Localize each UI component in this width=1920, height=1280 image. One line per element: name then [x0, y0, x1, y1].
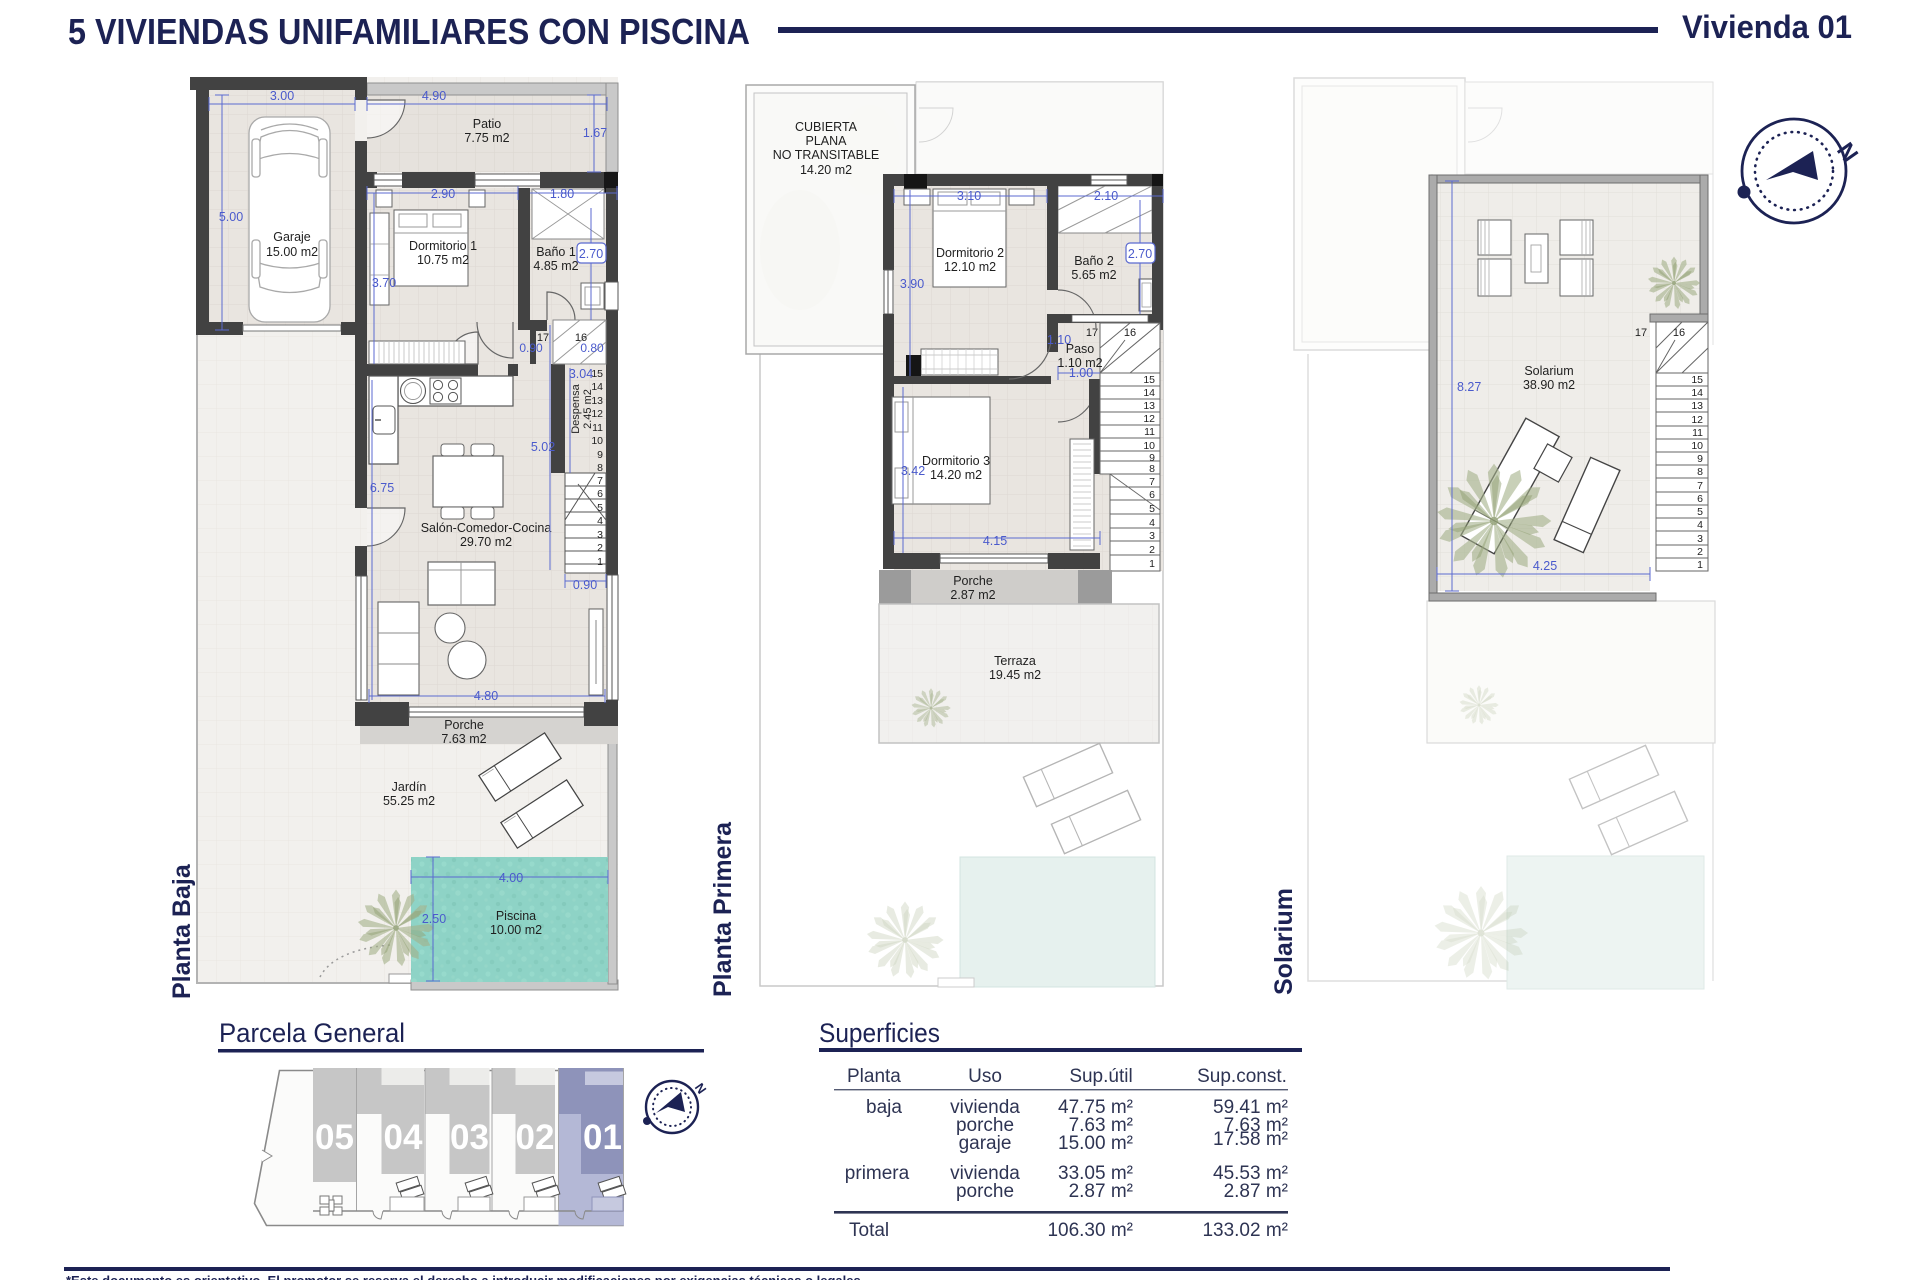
svg-text:9: 9	[1697, 453, 1703, 465]
svg-text:NO TRANSITABLE: NO TRANSITABLE	[773, 148, 880, 162]
svg-text:4.80: 4.80	[474, 689, 498, 703]
svg-text:3: 3	[597, 529, 603, 541]
svg-text:15: 15	[1143, 374, 1155, 386]
svg-text:6: 6	[1697, 493, 1703, 505]
svg-text:29.70 m2: 29.70 m2	[460, 535, 512, 549]
svg-text:2: 2	[1697, 546, 1703, 558]
svg-text:7.63 m2: 7.63 m2	[441, 732, 486, 746]
svg-text:Solarium: Solarium	[1270, 888, 1298, 995]
svg-text:2.70: 2.70	[579, 247, 603, 261]
svg-text:3: 3	[1149, 530, 1155, 542]
svg-text:Sup.útil: Sup.útil	[1069, 1066, 1132, 1087]
svg-text:8: 8	[1697, 466, 1703, 478]
svg-text:1: 1	[1149, 558, 1155, 570]
svg-text:16: 16	[1673, 327, 1685, 339]
svg-text:03: 03	[450, 1118, 489, 1157]
svg-text:15.00 m²: 15.00 m²	[1058, 1133, 1133, 1154]
svg-text:5.65 m2: 5.65 m2	[1071, 268, 1116, 282]
svg-text:55.25 m2: 55.25 m2	[383, 794, 435, 808]
svg-text:106.30 m²: 106.30 m²	[1047, 1220, 1133, 1241]
svg-text:6.75: 6.75	[370, 481, 394, 495]
svg-text:1: 1	[1697, 559, 1703, 571]
svg-text:7.75 m2: 7.75 m2	[464, 131, 509, 145]
svg-text:3: 3	[1697, 533, 1703, 545]
svg-text:0.90: 0.90	[519, 341, 543, 355]
svg-text:10: 10	[1143, 440, 1155, 452]
svg-text:14: 14	[1143, 387, 1155, 399]
svg-text:5: 5	[1149, 503, 1155, 515]
svg-text:5: 5	[597, 502, 603, 514]
svg-text:*Este documento es orientativo: *Este documento es orientativo. El promo…	[66, 1273, 861, 1280]
svg-text:Porche: Porche	[953, 574, 993, 588]
svg-text:6: 6	[1149, 489, 1155, 501]
svg-text:5 VIVIENDAS UNIFAMILIARES CON: 5 VIVIENDAS UNIFAMILIARES CON PISCINA	[68, 11, 750, 52]
svg-text:4.25: 4.25	[1533, 559, 1557, 573]
svg-text:5: 5	[1697, 506, 1703, 518]
svg-text:04: 04	[384, 1118, 423, 1157]
svg-text:porche: porche	[956, 1181, 1014, 1202]
svg-text:8: 8	[597, 462, 603, 474]
svg-text:2.10: 2.10	[1094, 189, 1118, 203]
svg-text:3.42: 3.42	[901, 464, 925, 478]
svg-text:2.87 m2: 2.87 m2	[950, 588, 995, 602]
svg-text:baja: baja	[866, 1097, 902, 1118]
svg-text:Baño 1: Baño 1	[536, 245, 576, 259]
svg-text:4.85 m2: 4.85 m2	[533, 259, 578, 273]
svg-text:Solarium: Solarium	[1524, 364, 1573, 378]
svg-text:19.45 m2: 19.45 m2	[989, 668, 1041, 682]
svg-text:3.70: 3.70	[372, 276, 396, 290]
svg-text:05: 05	[315, 1118, 354, 1157]
svg-text:2.87 m²: 2.87 m²	[1224, 1181, 1288, 1202]
svg-text:Superficies: Superficies	[819, 1018, 940, 1048]
svg-text:8.27: 8.27	[1457, 380, 1481, 394]
svg-text:garaje: garaje	[959, 1133, 1012, 1154]
svg-text:4.00: 4.00	[499, 871, 523, 885]
svg-text:13: 13	[1691, 400, 1703, 412]
svg-text:2: 2	[1149, 544, 1155, 556]
svg-text:0.90: 0.90	[573, 578, 597, 592]
svg-text:11: 11	[1692, 427, 1703, 439]
svg-text:2.45 m2: 2.45 m2	[582, 389, 594, 429]
svg-text:Patio: Patio	[473, 117, 502, 131]
svg-text:10.00 m2: 10.00 m2	[490, 923, 542, 937]
svg-text:4: 4	[597, 515, 603, 527]
svg-text:Piscina: Piscina	[496, 909, 536, 923]
svg-text:3.00: 3.00	[270, 89, 294, 103]
svg-text:Total: Total	[849, 1220, 889, 1241]
svg-text:Dormitorio 1: Dormitorio 1	[409, 239, 477, 253]
svg-text:2.70: 2.70	[1128, 247, 1152, 261]
svg-text:3.90: 3.90	[900, 277, 924, 291]
svg-text:Porche: Porche	[444, 718, 484, 732]
svg-text:primera: primera	[845, 1163, 910, 1184]
svg-text:7: 7	[1149, 476, 1155, 488]
svg-text:Planta: Planta	[847, 1066, 901, 1087]
svg-text:38.90 m2: 38.90 m2	[1523, 378, 1575, 392]
svg-text:10: 10	[1691, 440, 1703, 452]
svg-text:Parcela General: Parcela General	[219, 1018, 405, 1048]
svg-text:1.10: 1.10	[1047, 333, 1071, 347]
svg-text:15.00 m2: 15.00 m2	[266, 245, 318, 259]
svg-text:Garaje: Garaje	[273, 230, 311, 244]
svg-text:3.10: 3.10	[957, 189, 981, 203]
svg-text:9: 9	[597, 449, 603, 461]
svg-text:0.80: 0.80	[580, 341, 604, 355]
svg-text:14.20 m2: 14.20 m2	[930, 468, 982, 482]
svg-text:12: 12	[1143, 413, 1155, 425]
svg-text:11: 11	[1144, 426, 1155, 438]
svg-text:2.50: 2.50	[422, 912, 446, 926]
svg-text:Planta Baja: Planta Baja	[168, 863, 196, 999]
svg-text:16: 16	[1124, 327, 1136, 339]
svg-text:14: 14	[1691, 387, 1703, 399]
svg-text:12.10 m2: 12.10 m2	[944, 260, 996, 274]
svg-text:Vivienda 01: Vivienda 01	[1682, 9, 1852, 45]
svg-text:PLANA: PLANA	[806, 134, 848, 148]
svg-text:Dormitorio 2: Dormitorio 2	[936, 246, 1004, 260]
svg-text:7: 7	[597, 475, 603, 487]
svg-text:02: 02	[516, 1118, 555, 1157]
svg-text:Baño 2: Baño 2	[1074, 254, 1114, 268]
svg-text:17: 17	[1635, 327, 1647, 339]
svg-text:5.00: 5.00	[219, 210, 243, 224]
svg-text:5.02: 5.02	[531, 440, 555, 454]
svg-text:13: 13	[1143, 400, 1155, 412]
svg-text:Sup.const.: Sup.const.	[1197, 1066, 1287, 1087]
svg-text:4.90: 4.90	[422, 89, 446, 103]
svg-text:Planta Primera: Planta Primera	[709, 821, 737, 997]
svg-text:Jardín: Jardín	[392, 780, 427, 794]
svg-text:1.80: 1.80	[550, 187, 574, 201]
svg-text:CUBIERTA: CUBIERTA	[795, 120, 858, 134]
svg-text:12: 12	[1691, 414, 1703, 426]
svg-text:8: 8	[1149, 463, 1155, 475]
svg-text:2: 2	[597, 542, 603, 554]
svg-text:Dormitorio 3: Dormitorio 3	[922, 454, 990, 468]
svg-text:6: 6	[597, 488, 603, 500]
svg-text:133.02 m²: 133.02 m²	[1202, 1220, 1288, 1241]
svg-text:Salón-Comedor-Cocina: Salón-Comedor-Cocina	[421, 521, 552, 535]
svg-text:17: 17	[1086, 327, 1098, 339]
svg-text:Uso: Uso	[968, 1066, 1002, 1087]
svg-text:4.15: 4.15	[983, 534, 1007, 548]
svg-text:Despensa: Despensa	[570, 383, 582, 433]
svg-text:1.00: 1.00	[1069, 366, 1093, 380]
svg-text:2.90: 2.90	[431, 187, 455, 201]
svg-text:15: 15	[1691, 374, 1703, 386]
svg-text:1.67: 1.67	[583, 126, 607, 140]
svg-text:Terraza: Terraza	[994, 654, 1036, 668]
svg-text:4: 4	[1697, 519, 1703, 531]
svg-text:17.58 m²: 17.58 m²	[1213, 1129, 1288, 1150]
svg-text:3.04: 3.04	[569, 367, 593, 381]
svg-text:7: 7	[1697, 480, 1703, 492]
svg-text:1: 1	[597, 556, 603, 568]
svg-text:14.20 m2: 14.20 m2	[800, 163, 852, 177]
svg-text:01: 01	[583, 1118, 622, 1157]
svg-text:10.75 m2: 10.75 m2	[417, 253, 469, 267]
svg-text:4: 4	[1149, 517, 1155, 529]
svg-text:2.87 m²: 2.87 m²	[1069, 1181, 1133, 1202]
svg-text:10: 10	[591, 435, 603, 447]
